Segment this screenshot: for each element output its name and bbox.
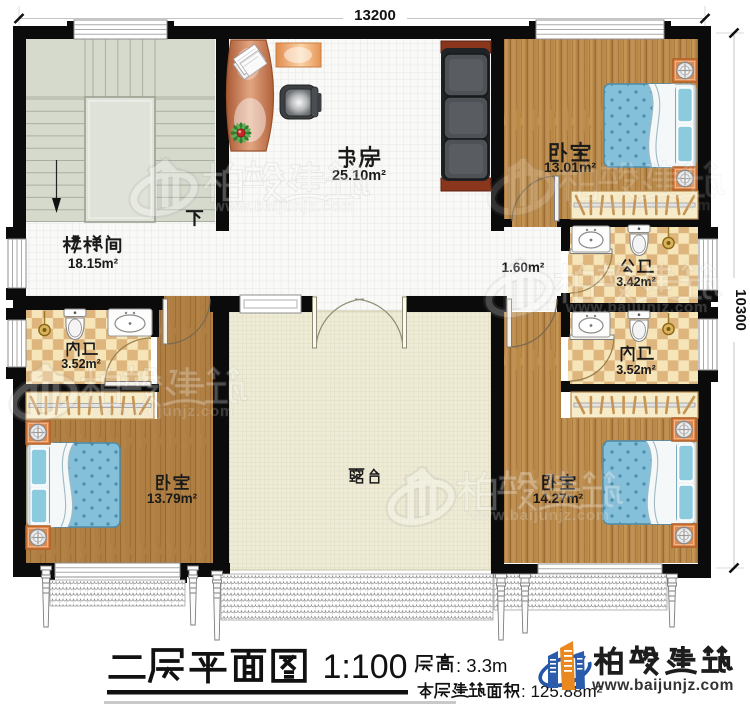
- svg-text:18.15m²: 18.15m²: [68, 256, 119, 271]
- svg-text:www.baijunjz.com: www.baijunjz.com: [91, 403, 234, 420]
- svg-text:: 3.3m: : 3.3m: [456, 655, 507, 676]
- svg-text:13.79m²: 13.79m²: [147, 491, 198, 506]
- svg-text:www.baijunjz.com: www.baijunjz.com: [212, 198, 355, 215]
- svg-text:www.baijunjz.com: www.baijunjz.com: [565, 299, 708, 316]
- svg-text:13200: 13200: [354, 7, 396, 24]
- svg-text:3.52m²: 3.52m²: [61, 357, 101, 371]
- svg-text:www.baijunjz.com: www.baijunjz.com: [591, 677, 734, 694]
- svg-text:www.baijunjz.com: www.baijunjz.com: [568, 197, 711, 214]
- svg-text:1:100: 1:100: [322, 648, 407, 686]
- svg-text:10300: 10300: [732, 289, 749, 331]
- svg-text:www.baijunjz.com: www.baijunjz.com: [467, 507, 610, 524]
- svg-text:3.52m²: 3.52m²: [616, 363, 656, 377]
